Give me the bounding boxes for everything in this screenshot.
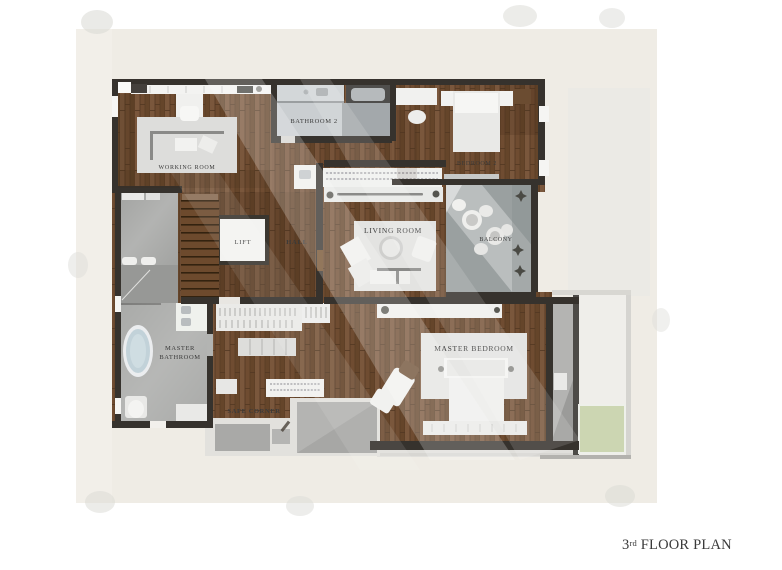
svg-text:BATHROOM: BATHROOM — [159, 354, 200, 361]
svg-text:SAFE CORNER: SAFE CORNER — [227, 408, 280, 415]
svg-text:BALCONY: BALCONY — [479, 237, 512, 243]
svg-text:WORKING ROOM: WORKING ROOM — [159, 165, 216, 171]
svg-text:3rd FLOOR PLAN: 3rd FLOOR PLAN — [622, 537, 732, 553]
svg-text:BATHROOM 2: BATHROOM 2 — [290, 118, 337, 125]
svg-text:BEDROOM 2: BEDROOM 2 — [457, 161, 497, 167]
svg-text:MASTER: MASTER — [165, 345, 195, 352]
